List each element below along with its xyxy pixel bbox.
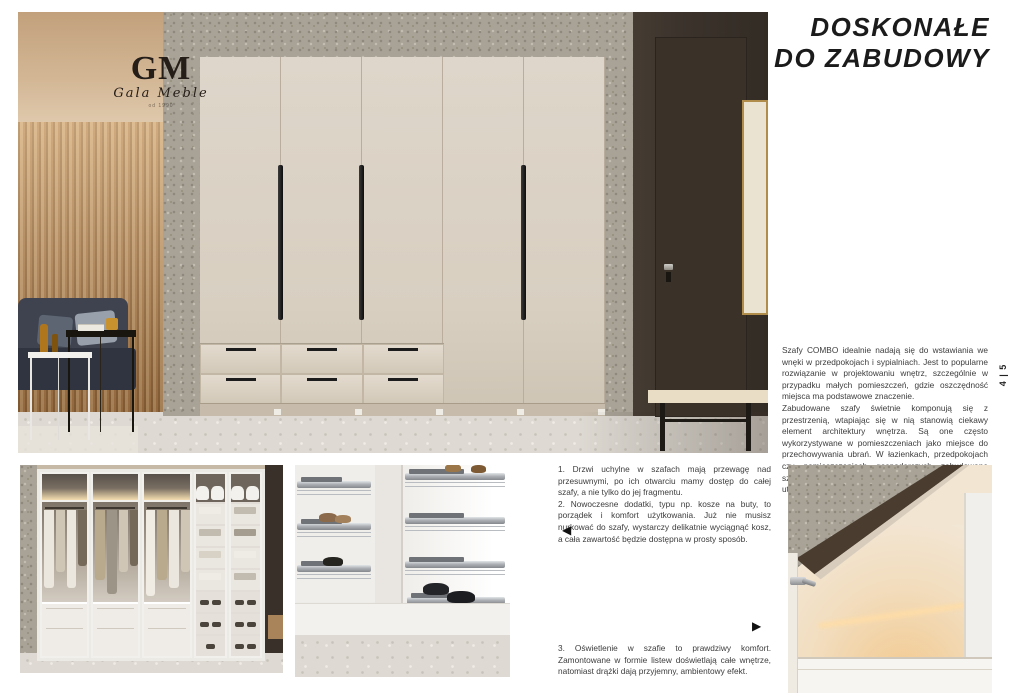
hanging-area [93,502,138,604]
garment [130,510,139,566]
brand-logo: GM Gala Meble od 1990 [76,52,246,110]
shoe-black [323,557,343,566]
garment [169,510,179,588]
wardrobe-front [200,57,605,415]
logo-name: Gala Meble [76,86,246,102]
shelf [196,502,225,524]
shelf-seam [792,669,992,670]
folded-clothes [199,551,221,558]
shoe [235,644,244,649]
shoe-shelf [196,634,225,656]
garment [146,510,155,596]
door-handle [521,165,526,320]
shelf [231,546,260,568]
bench-rail [660,419,751,422]
garment [181,510,190,572]
shoe-shelf [196,590,225,612]
shelf [196,568,225,590]
folded-clothes [199,529,221,536]
arrow-right-icon: ▶ [752,620,761,632]
wardrobe-drawer-block [200,343,444,404]
shoe-shelf [231,612,260,634]
hero-photo-built-in-wardrobe: GM Gala Meble od 1990 [18,12,768,453]
pillow-cubby [196,474,225,502]
folded-clothes [234,529,256,536]
interior-drawers [42,602,87,656]
pullout-rack [405,473,505,480]
shoe-black [447,591,475,603]
photo-open-wardrobe [20,465,283,673]
garment [56,510,65,572]
hanging-area [42,502,87,604]
room-door [655,37,747,417]
coffee-table-black [66,330,136,337]
clothes-rail [147,507,186,509]
logo-tagline: od 1990 [76,102,246,110]
led-top-light [144,474,189,500]
door-handle [278,165,283,320]
white-wardrobe-interior [37,469,265,661]
led-top-light [42,474,87,500]
photo-shoe-racks [295,465,510,677]
table-leg [132,337,134,432]
drawer [200,344,281,374]
garment [95,510,105,580]
shoe [212,600,221,605]
pillow [231,486,244,500]
pillow [196,486,209,500]
bench-leg [746,403,751,451]
shoe [247,644,256,649]
shelf [231,502,260,524]
shoe [200,600,209,605]
door-handle-metal [664,264,673,270]
note-3-text: 3. Oświetlenie w szafie to prawdziwy kom… [558,643,771,678]
interior-drawers [144,602,189,656]
brochure-page: { "header": { "title_line1": "DOSKONAŁE"… [0,0,1024,693]
pullout-rack [297,523,371,530]
gold-bowl [106,318,118,330]
table-leg [30,358,32,440]
shelf-stack [231,474,260,656]
table-leg [100,337,101,432]
folded-clothes [199,507,221,514]
door-lock [666,272,671,282]
granite-pillar-right [605,12,633,416]
shoe-black [423,583,449,595]
books-stack [78,324,104,331]
shoe [200,622,209,627]
shoe-brown [335,515,351,523]
cabinet-partition [375,465,403,615]
shoe [206,644,215,649]
shelf [231,568,260,590]
arrow-left-icon: ◀ [562,524,571,536]
shoe-tan [471,465,486,473]
drawer [281,344,362,374]
drawer [363,344,444,374]
interior-drawers [93,602,138,656]
hanging-clothes [95,510,138,594]
wardrobe-door [524,57,605,415]
table-leg [88,358,90,440]
pillow [246,486,259,500]
granite-header-band [163,12,633,57]
clothes-rail [45,507,84,509]
open-door-edge [788,553,798,693]
led-top-light [93,474,138,500]
folded-clothes [234,573,256,580]
photo-wardrobe-lighting [788,465,992,693]
shoe [212,622,221,627]
folded-clothes [234,551,256,558]
garment [67,510,77,588]
wardrobe-door [443,57,524,415]
coffee-table-white [28,352,92,358]
folded-clothes [234,507,256,514]
shoe-tan [445,465,461,472]
hanging-clothes [146,510,189,596]
wardrobe-feet [200,409,605,415]
page-title-line2: DO ZABUDOWY [774,43,990,74]
garment [157,510,167,580]
hanging-area [144,502,189,604]
shelf [196,524,225,546]
shelf [231,524,260,546]
rug [18,426,138,453]
amber-vase [40,324,48,352]
granite-strip [20,465,37,655]
pillow [211,486,224,500]
note-3: 3. Oświetlenie w szafie to prawdziwy kom… [558,643,771,678]
drawer [363,374,444,404]
pullout-rack [297,565,371,572]
shoe [247,622,256,627]
intro-paragraph-1: Szafy COMBO idealnie nadają się do wstaw… [782,345,988,403]
amber-bottle [52,334,58,352]
wood-ledge [268,615,283,639]
picture-art [748,132,764,282]
shelf [196,546,225,568]
pullout-rack [405,561,505,568]
hanging-section [91,472,140,658]
shoe [235,622,244,627]
drawer [281,374,362,404]
garment [119,510,128,572]
pullout-rack [405,517,505,524]
hanging-section [40,472,89,658]
shoe [235,600,244,605]
garment [44,510,54,588]
folded-clothes [199,573,221,580]
shelf-stack [196,474,225,656]
page-title: DOSKONAŁE DO ZABUDOWY [774,12,990,74]
shoe [247,600,256,605]
shoe-shelf [231,634,260,656]
clothes-rail [96,507,135,509]
shoe-shelf [196,612,225,634]
page-number: 4 | 5 [998,353,1008,397]
terrazzo-floor [295,635,510,677]
bench-seat [648,390,768,403]
shelf-section [229,472,262,658]
interior-shelf [792,657,992,693]
shoe-shelf [231,590,260,612]
pullout-rack [297,481,371,488]
hanging-section [142,472,191,658]
logo-monogram: GM [76,52,246,86]
door-handle [359,165,364,320]
drawer [200,374,281,404]
shelf-section [194,472,227,658]
table-leg [58,358,59,440]
note-2: 2. Nowoczesne dodatki, typu np. kosze na… [558,499,771,545]
hanging-clothes [44,510,87,588]
pillow-cubby [231,474,260,502]
page-title-line1: DOSKONAŁE [774,12,990,43]
garment [78,510,87,566]
notes-text: 1. Drzwi uchylne w szafach mają przewagę… [558,464,771,545]
note-1: 1. Drzwi uchylne w szafach mają przewagę… [558,464,771,499]
bench-leg [660,403,665,451]
garment [107,510,117,594]
